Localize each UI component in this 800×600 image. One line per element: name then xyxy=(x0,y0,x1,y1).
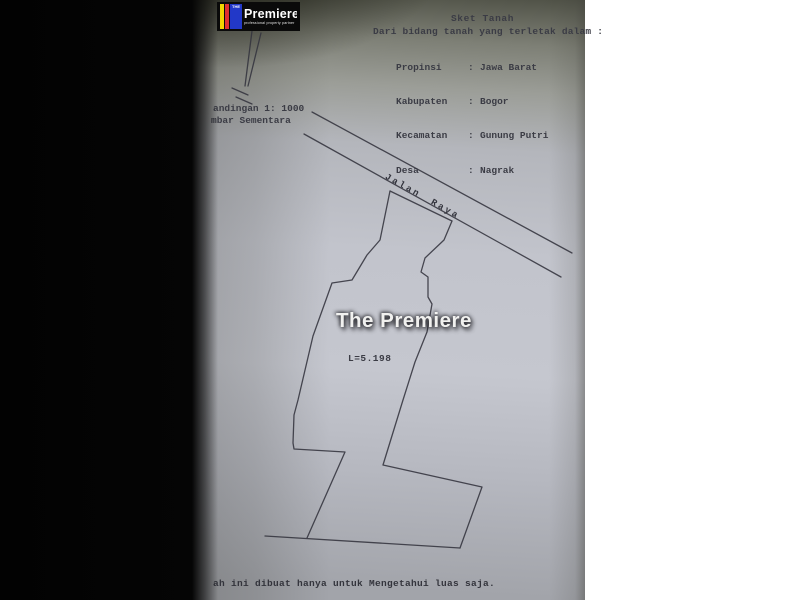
field-row-desa: Desa : Nagrak xyxy=(396,165,548,177)
photo-black-bar-left xyxy=(0,0,218,600)
field-label: Propinsi xyxy=(396,62,468,74)
plot-left-boundary xyxy=(293,191,390,538)
disclaimer-note: ah ini dibuat hanya untuk Mengetahui lua… xyxy=(213,578,495,589)
path-dash-1 xyxy=(232,88,248,95)
field-label: Kecamatan xyxy=(396,130,468,142)
field-row-propinsi: Propinsi : Jawa Barat xyxy=(396,62,548,74)
scale-note: andingan 1: 1000 xyxy=(213,103,304,114)
logo-name: Premiere xyxy=(244,8,297,21)
field-row-kabupaten: Kabupaten : Bogor xyxy=(396,96,548,108)
field-colon: : xyxy=(468,62,480,74)
field-value: Nagrak xyxy=(480,165,514,177)
field-label: Kabupaten xyxy=(396,96,468,108)
field-value: Jawa Barat xyxy=(480,62,537,74)
logo-red-stripe xyxy=(225,4,229,29)
plot-right-boundary xyxy=(383,221,482,548)
agency-logo: THE Premiere professional property partn… xyxy=(217,2,300,31)
temporary-drawing-note: mbar Sementara xyxy=(211,115,291,126)
field-colon: : xyxy=(468,96,480,108)
path-line-left xyxy=(245,31,252,86)
document-subtitle: Dari bidang tanah yang terletak dalam : xyxy=(373,26,603,37)
logo-yellow-stripe xyxy=(220,4,224,29)
field-value: Gunung Putri xyxy=(480,130,548,142)
logo-text: Premiere professional property partner xyxy=(244,4,297,29)
field-row-kecamatan: Kecamatan : Gunung Putri xyxy=(396,130,548,142)
logo-the-badge: THE xyxy=(230,4,242,29)
photo-of-land-sketch: Sket Tanah Dari bidang tanah yang terlet… xyxy=(0,0,800,600)
plot-area-label: L=5.198 xyxy=(348,353,391,364)
path-line-right xyxy=(248,33,261,86)
field-value: Bogor xyxy=(480,96,509,108)
agency-watermark: The Premiere xyxy=(336,309,472,333)
field-label: Desa xyxy=(396,165,468,177)
field-colon: : xyxy=(468,130,480,142)
location-fields: Propinsi : Jawa Barat Kabupaten : Bogor … xyxy=(396,40,548,199)
logo-tagline: professional property partner xyxy=(244,21,297,26)
field-colon: : xyxy=(468,165,480,177)
plot-bottom-edge xyxy=(265,536,460,548)
document-title: Sket Tanah xyxy=(451,13,514,24)
